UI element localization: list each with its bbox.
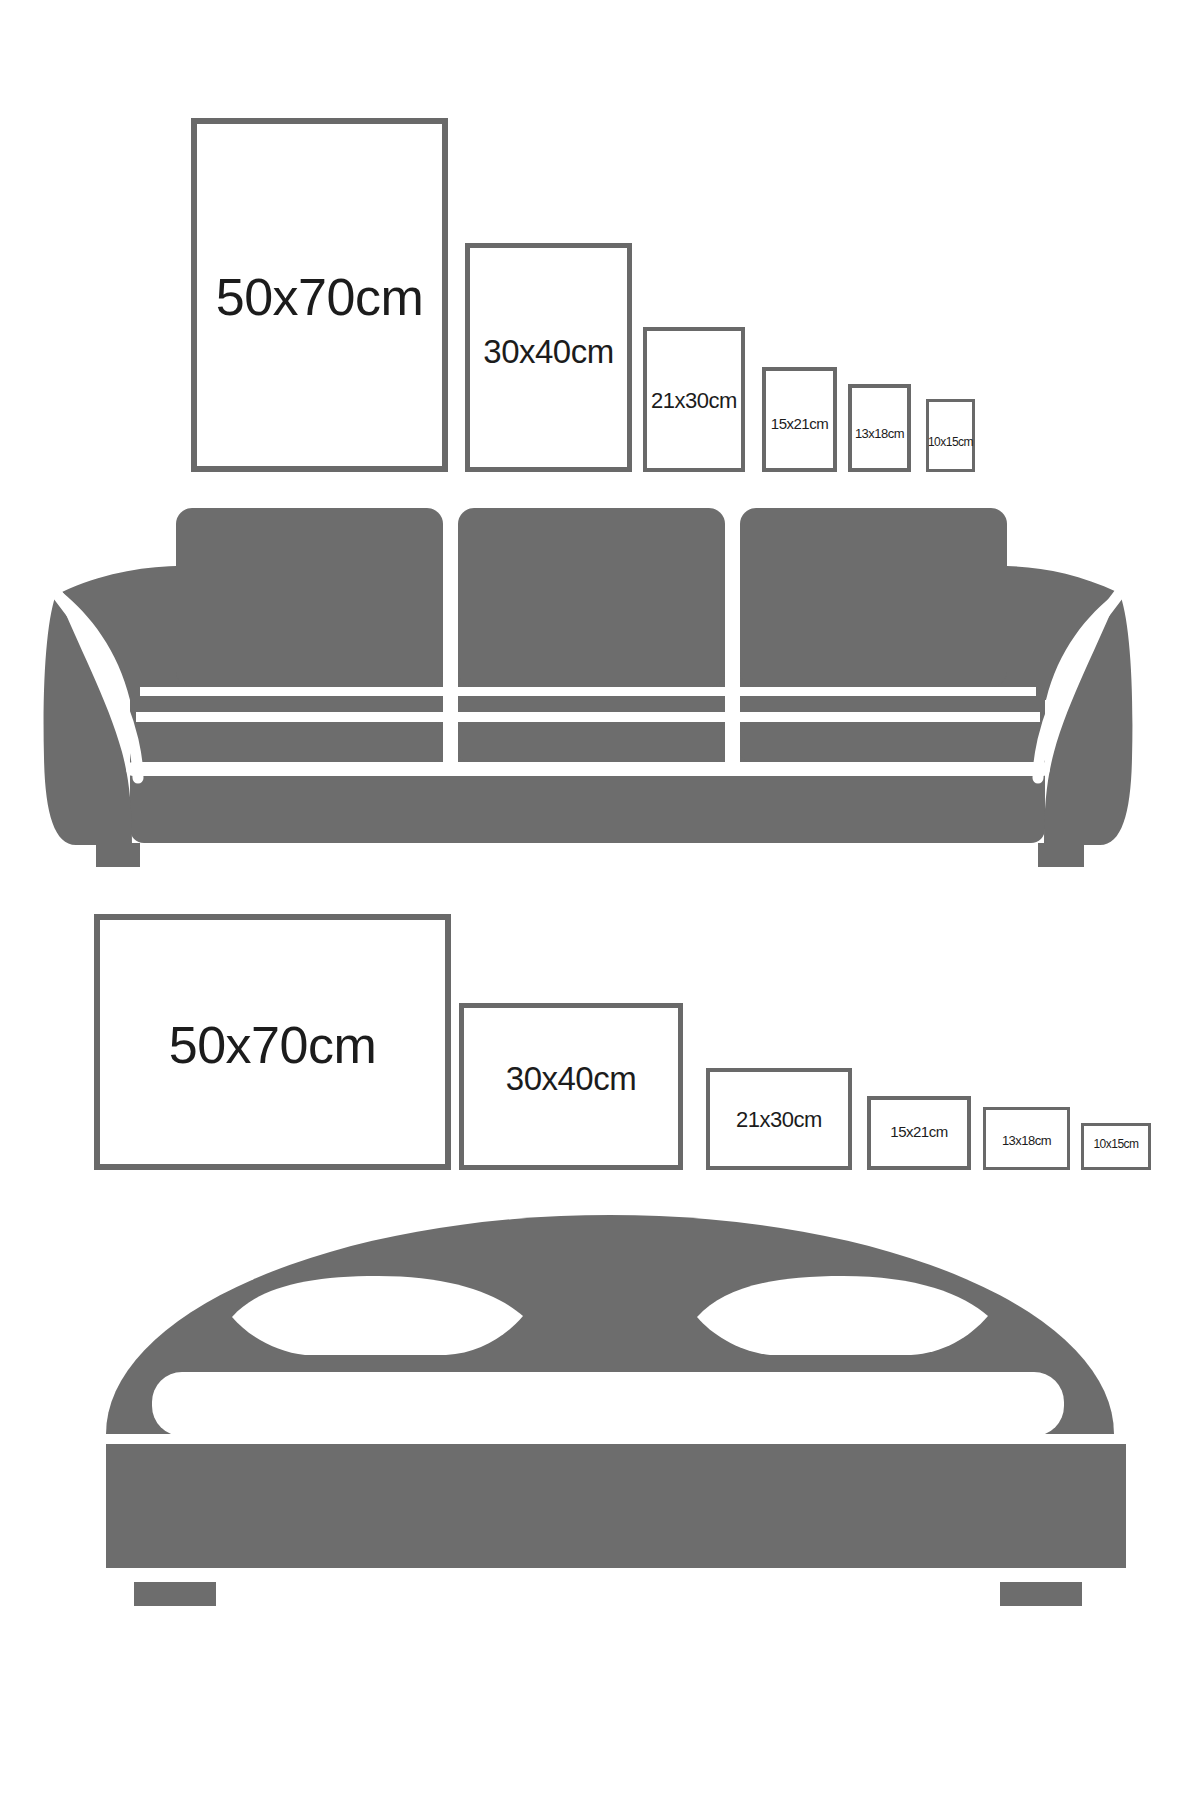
size-frame-label: 15x21cm — [890, 1123, 947, 1140]
size-frame-sofa-15x21cm: 15x21cm — [762, 367, 837, 472]
size-frame-bed-50x70cm: 50x70cm — [94, 914, 451, 1170]
size-frame-label: 50x70cm — [169, 1015, 377, 1075]
size-frame-label: 21x30cm — [736, 1107, 822, 1133]
size-frame-bed-15x21cm: 15x21cm — [867, 1096, 971, 1170]
size-frame-sofa-21x30cm: 21x30cm — [643, 327, 745, 472]
size-frame-sofa-50x70cm: 50x70cm — [191, 118, 448, 472]
bed-foot — [1000, 1582, 1082, 1606]
size-frame-bed-21x30cm: 21x30cm — [706, 1068, 852, 1170]
size-frame-bed-10x15cm: 10x15cm — [1081, 1123, 1151, 1170]
size-frame-bed-13x18cm: 13x18cm — [983, 1107, 1070, 1170]
size-frame-sofa-30x40cm: 30x40cm — [465, 243, 632, 472]
size-frame-label: 10x15cm — [928, 435, 973, 449]
size-frame-sofa-13x18cm: 13x18cm — [848, 384, 911, 472]
poster-size-guide: 50x70cm30x40cm21x30cm15x21cm13x18cm10x15… — [0, 0, 1200, 1800]
bed-base — [106, 1444, 1126, 1568]
size-frame-sofa-10x15cm: 10x15cm — [926, 399, 975, 472]
size-frame-bed-30x40cm: 30x40cm — [459, 1003, 683, 1170]
size-frame-label: 21x30cm — [651, 388, 737, 414]
size-frame-label: 13x18cm — [1002, 1133, 1051, 1148]
size-frame-label: 30x40cm — [506, 1060, 636, 1098]
size-frame-label: 15x21cm — [771, 415, 828, 432]
size-frame-label: 10x15cm — [1093, 1137, 1138, 1151]
size-frame-label: 30x40cm — [483, 333, 613, 371]
size-frame-label: 13x18cm — [855, 426, 904, 441]
size-frame-label: 50x70cm — [216, 267, 424, 327]
bed-foot — [134, 1582, 216, 1606]
